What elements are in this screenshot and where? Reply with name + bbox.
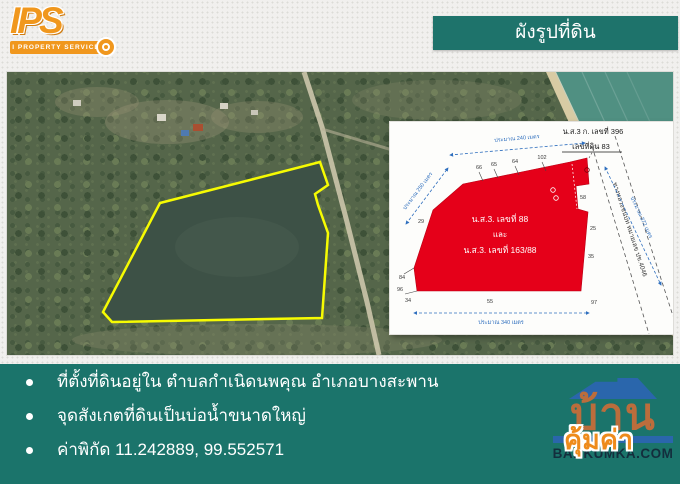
edge-number: 29: [418, 219, 424, 225]
clearing-patch: [55, 87, 139, 117]
parcel-label-2: และ: [493, 230, 507, 239]
edge-number: 25: [590, 226, 596, 232]
pond-surface: [175, 217, 299, 277]
page-title: ผังรูปที่ดิน: [433, 16, 678, 50]
measure-line-top: [450, 143, 585, 155]
bullet-icon: [26, 447, 33, 454]
bankumka-logo: บ้าน คุ้มค่า BANKUMKA.COM: [550, 378, 676, 482]
house: [157, 114, 166, 121]
house-red-roof: [193, 124, 203, 131]
edge-number: 58: [580, 195, 586, 201]
house: [73, 100, 81, 106]
clearing-patch: [72, 324, 442, 355]
measure-left-label: ประมาณ 250 เมตร: [401, 171, 434, 212]
edge-number: 96: [397, 287, 403, 293]
bankumka-overlay-text: คุ้มค่า: [564, 418, 633, 461]
boundary-tick: [479, 172, 483, 181]
edge-number: 102: [537, 155, 546, 161]
edge-number: 65: [491, 162, 497, 168]
house: [220, 103, 228, 109]
edge-number: 55: [487, 299, 493, 305]
details-panel: ที่ตั้งที่ดินอยู่ใน ตำบลกำเนิดนพคุณ อำเภ…: [0, 364, 680, 484]
edge-number: 97: [591, 300, 597, 306]
side-road: [322, 129, 399, 152]
edge-number: 64: [512, 159, 518, 165]
parcel-label-1: น.ส.3. เลขที่ 88: [472, 213, 529, 224]
boundary-tick: [404, 268, 414, 274]
deed-subtitle: เลขที่ดิน 83: [572, 141, 610, 151]
detail-coordinates: ค่าพิกัด 11.242889, 99.552571: [57, 440, 284, 460]
satellite-map: ทางหลวงชนบท หมายเลข ปข.4046 ประมาณ 240 เ…: [7, 72, 673, 355]
bullet-icon: [26, 379, 33, 386]
survey-diagram: ทางหลวงชนบท หมายเลข ปข.4046 ประมาณ 240 เ…: [390, 122, 673, 334]
parcel-label-3: น.ส.3. เลขที่ 163/88: [463, 244, 536, 255]
detail-landmark: จุดสังเกตที่ดินเป็นบ่อน้ำขนาดใหญ่: [57, 406, 306, 426]
edge-number: 34: [405, 298, 411, 304]
edge-number: 84: [399, 275, 405, 281]
boundary-tick: [494, 169, 498, 178]
ips-logo: IPS I PROPERTY SERVICE: [10, 2, 130, 58]
house-blue-roof: [181, 130, 189, 136]
edge-number: 66: [476, 165, 482, 171]
clearing-patch: [352, 80, 522, 120]
measure-top-label: ประมาณ 240 เมตร: [494, 133, 540, 144]
ips-logo-text: IPS: [10, 2, 130, 40]
house: [251, 110, 258, 115]
boundary-tick: [405, 291, 417, 294]
road-edge: [592, 146, 649, 334]
measure-bottom-label: ประมาณ 340 เมตร: [478, 319, 524, 326]
road-label: ทางหลวงชนบท หมายเลข ปข.4046: [611, 182, 648, 278]
slide: IPS I PROPERTY SERVICE ผังรูปที่ดิน: [0, 0, 680, 484]
ips-logo-subtitle: I PROPERTY SERVICE: [10, 41, 102, 54]
detail-location: ที่ตั้งที่ดินอยู่ใน ตำบลกำเนิดนพคุณ อำเภ…: [57, 372, 439, 392]
bullet-icon: [26, 413, 33, 420]
edge-number: 35: [588, 254, 594, 260]
ips-logo-subtitle-label: I PROPERTY SERVICE: [12, 44, 99, 51]
deed-title: น.ส.3 ก. เลขที่ 396: [563, 126, 624, 136]
ips-badge-icon: [96, 37, 116, 57]
